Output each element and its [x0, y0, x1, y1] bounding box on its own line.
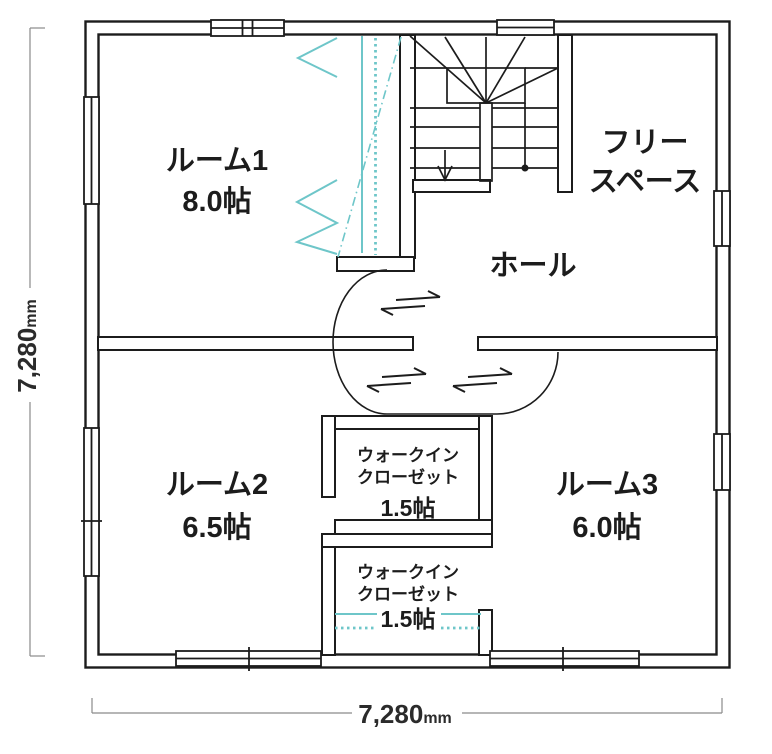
wic1-label-line2: クローゼット	[308, 469, 508, 487]
sliding-arrow-hall	[381, 291, 440, 315]
wic2-area-label: 1.5帖	[308, 607, 508, 631]
vertical-dimension-value: 7,280	[12, 328, 42, 393]
wic1-label-line1: ウォークイン	[308, 447, 508, 465]
room3-area-label: 6.0帖	[487, 513, 727, 543]
sliding-arrow-room3	[453, 368, 512, 392]
wic1-area-label: 1.5帖	[308, 496, 508, 520]
room1-closet-hanger-pipe	[338, 36, 401, 257]
floor-plan-linework	[0, 0, 772, 754]
wic2-label-line2: クローゼット	[308, 586, 508, 604]
room1-area-label: 8.0帖	[97, 187, 337, 217]
wic2-label-line1: ウォークイン	[308, 564, 508, 582]
window-top-room1	[211, 20, 284, 36]
window-top-stairs	[497, 20, 554, 35]
stair-down-arrow-icon	[438, 150, 452, 180]
window-left-room2	[81, 428, 102, 576]
free-space-label-line2: スペース	[525, 167, 765, 197]
horizontal-dimension-value: 7,280	[358, 699, 423, 729]
window-right-freespace	[714, 191, 730, 246]
room3-name-label: ルーム3	[487, 470, 727, 500]
free-space-label-line1: フリー	[525, 128, 765, 158]
stairs	[410, 36, 558, 181]
vertical-dimension-unit: mm	[23, 299, 40, 327]
room1-name-label: ルーム1	[97, 146, 337, 176]
room2-area-label: 6.5帖	[97, 513, 337, 543]
horizontal-dimension-unit: mm	[423, 710, 451, 727]
vertical-dimension-label: 7,280mm	[14, 266, 46, 426]
room2-name-label: ルーム2	[97, 470, 337, 500]
hall-label: ホール	[413, 251, 653, 281]
floor-plan: ルーム1 8.0帖 ルーム2 6.5帖 ルーム3 6.0帖 ホール フリー スペ…	[0, 0, 772, 754]
horizontal-dimension-label: 7,280mm	[325, 701, 485, 728]
sliding-arrow-room2	[367, 368, 426, 392]
